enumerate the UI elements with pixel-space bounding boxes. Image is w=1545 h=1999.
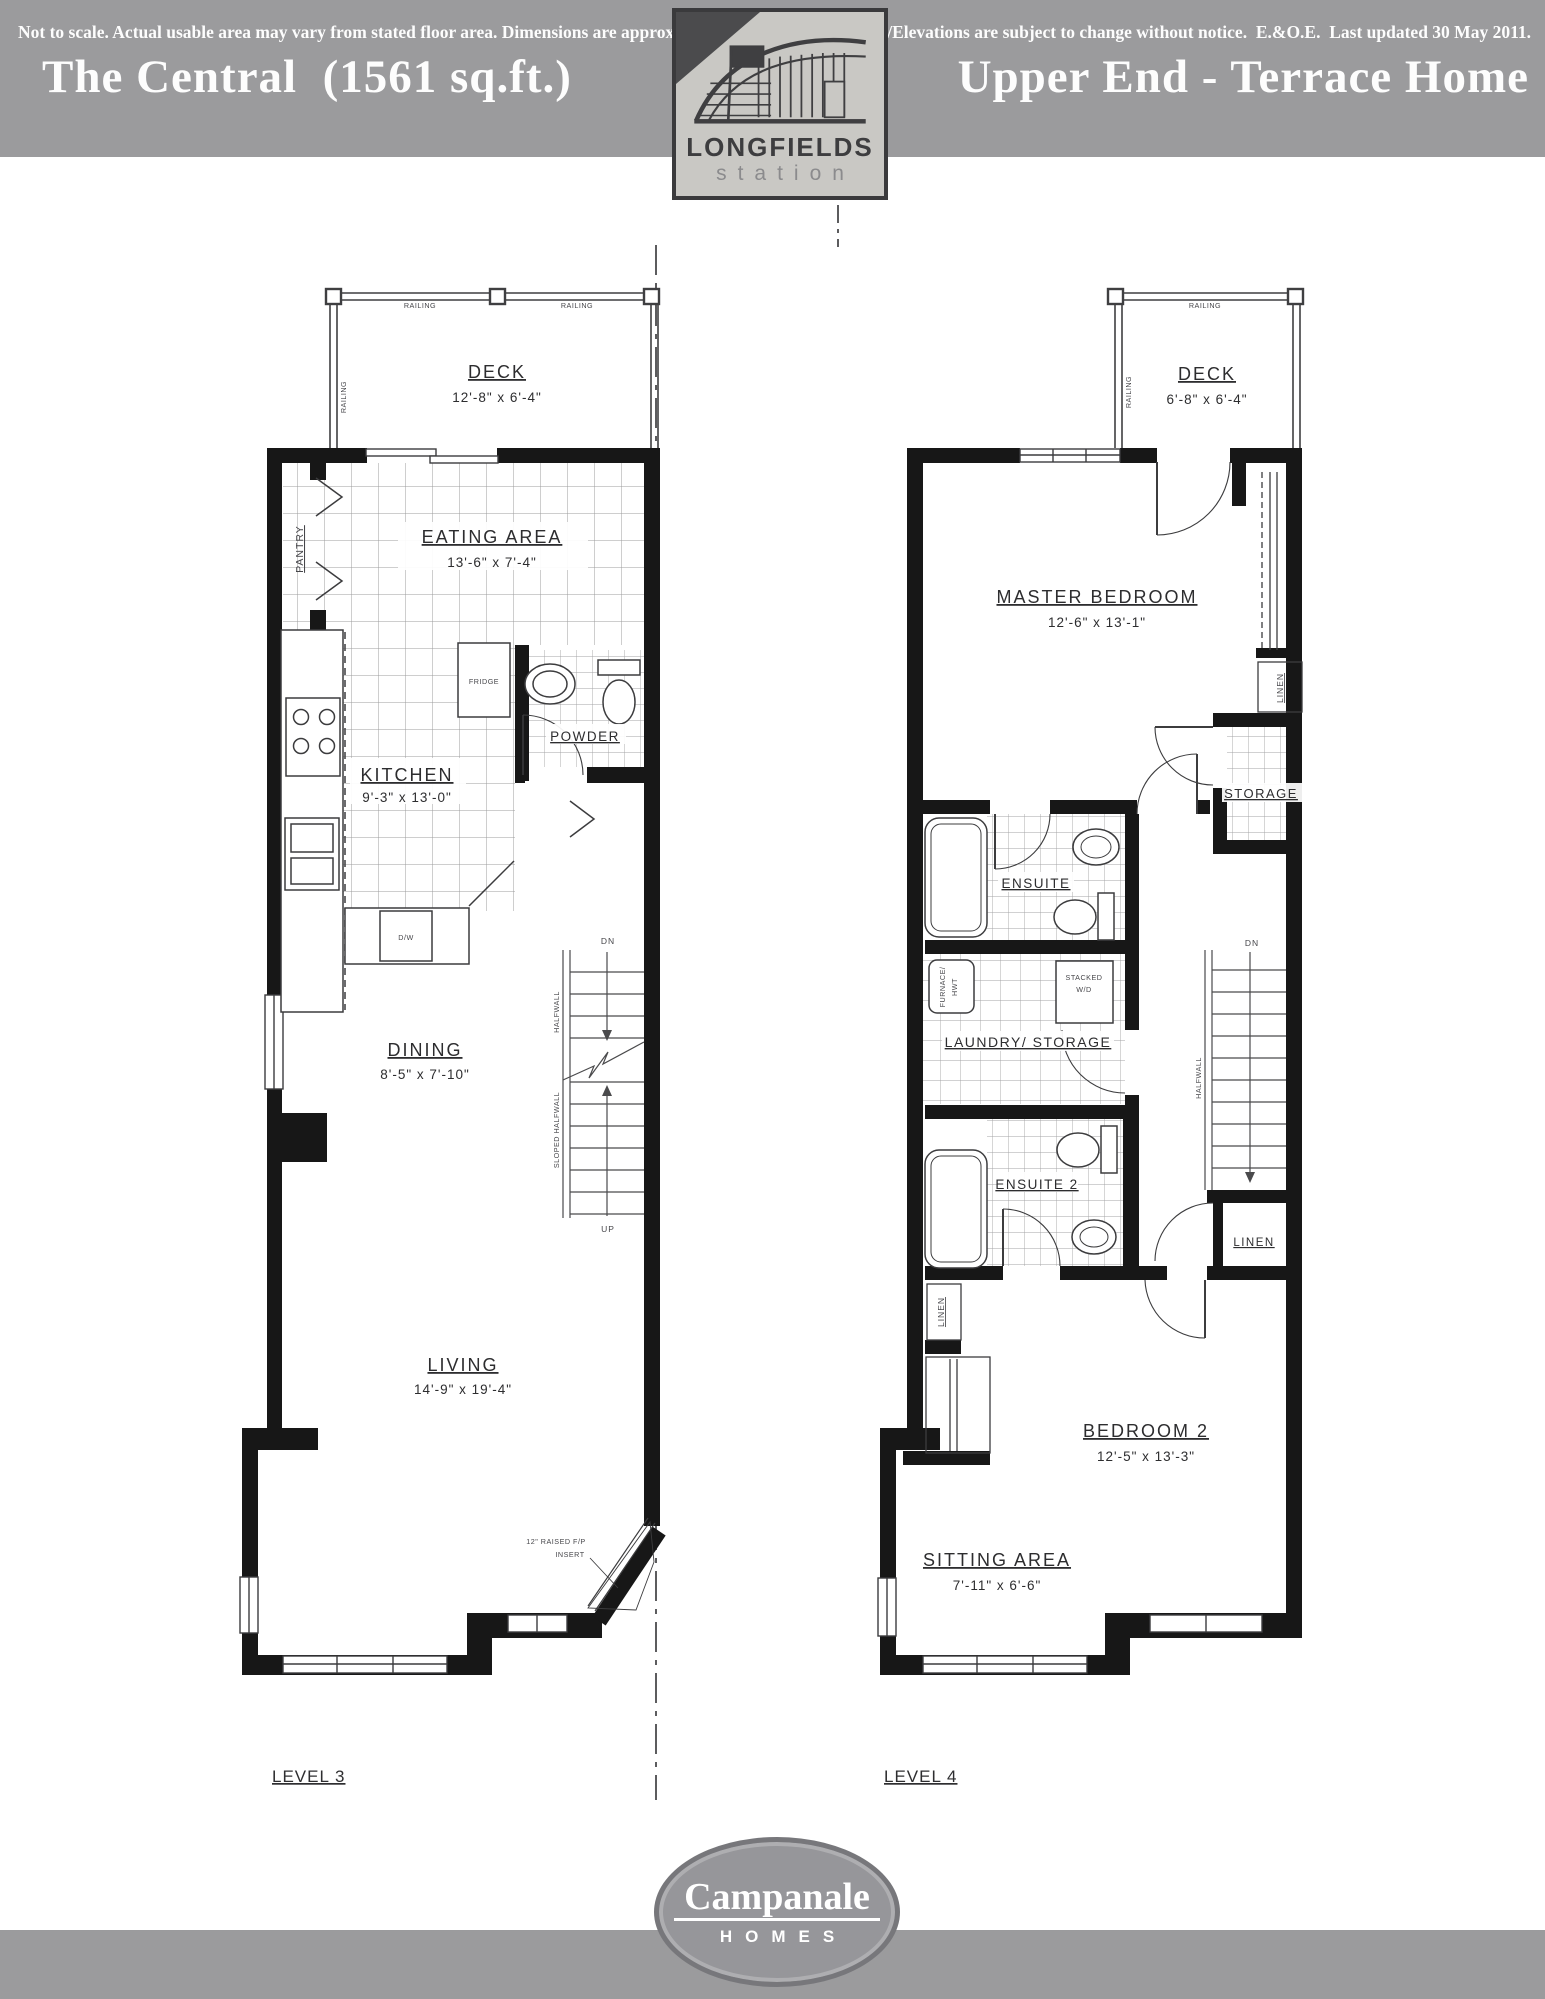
ensuite-sink bbox=[1073, 829, 1119, 865]
powder-label: POWDER bbox=[550, 729, 620, 744]
ensuite2-tub bbox=[925, 1150, 987, 1268]
ensuite2-label: ENSUITE 2 bbox=[995, 1177, 1078, 1192]
stove bbox=[286, 698, 340, 776]
railing-label: RAILING bbox=[1189, 301, 1221, 310]
hall-closet-door bbox=[570, 801, 594, 837]
railing-label: RAILING bbox=[404, 301, 436, 310]
eating-area-dims: 13'-6" x 7'-4" bbox=[447, 555, 537, 570]
sitting-area-dims: 7'-11" x 6'-6" bbox=[953, 1578, 1042, 1593]
sitting-area-label: SITTING AREA bbox=[923, 1550, 1071, 1570]
ensuite-label: ENSUITE bbox=[1001, 876, 1070, 891]
bedroom2-label: BEDROOM 2 bbox=[1083, 1421, 1209, 1441]
dishwasher-label: D/W bbox=[398, 933, 413, 942]
level3-plan: RAILING RAILING RAILING DECK 12'-8" x 6'… bbox=[240, 289, 660, 1786]
furnace-hwt-label: HWT bbox=[950, 978, 959, 996]
footer-disclaimer-left: Not to scale. Actual usable area may var… bbox=[18, 22, 720, 43]
fridge-label: FRIDGE bbox=[469, 677, 499, 686]
stairs-dn-label: DN bbox=[1245, 938, 1259, 948]
railing-label: RAILING bbox=[339, 381, 348, 413]
living-label: LIVING bbox=[427, 1355, 498, 1375]
master-bedroom-label: MASTER BEDROOM bbox=[996, 587, 1197, 607]
laundry-storage-label: LAUNDRY/ STORAGE bbox=[945, 1034, 1112, 1050]
furnace-hwt-label: FURNACE/ bbox=[938, 967, 947, 1008]
storage-label: STORAGE bbox=[1224, 786, 1298, 801]
brand-wordmark-sub: HOMES bbox=[707, 1927, 847, 1947]
fireplace-label: 12" RAISED F/P bbox=[526, 1537, 585, 1546]
ensuite2-sink bbox=[1072, 1220, 1116, 1254]
kitchen-label: KITCHEN bbox=[360, 765, 453, 785]
deck-label: DECK bbox=[468, 362, 526, 382]
railing-label: RAILING bbox=[561, 301, 593, 310]
level4-title: LEVEL 4 bbox=[884, 1767, 957, 1786]
longfields-station-logo: LONGFIELDS station bbox=[672, 8, 888, 200]
level4-plan: RAILING RAILING DECK 6'-8" x 6'-4" MASTE… bbox=[878, 289, 1304, 1786]
floorplan-page: RAILING RAILING RAILING DECK 12'-8" x 6'… bbox=[0, 0, 1545, 1999]
station-building-icon bbox=[688, 28, 872, 128]
stacked-wd-label: W/D bbox=[1076, 985, 1091, 994]
linen-label: LINEN bbox=[936, 1297, 946, 1327]
living-dims: 14'-9" x 19'-4" bbox=[414, 1382, 512, 1397]
fireplace-label: INSERT bbox=[555, 1550, 584, 1559]
kitchen-sink bbox=[285, 818, 339, 890]
halfwall-label: HALFWALL bbox=[1194, 1057, 1203, 1099]
logo-wordmark-sub: station bbox=[676, 162, 884, 186]
ensuite2-toilet bbox=[1101, 1126, 1117, 1173]
stairs-up-label: UP bbox=[601, 1224, 615, 1234]
stairs-dn-label: DN bbox=[601, 936, 615, 946]
unit-divider-lines bbox=[656, 205, 838, 1800]
sloped-halfwall-label: SLOPED HALFWALL bbox=[552, 1092, 561, 1168]
floorplan-drawing: RAILING RAILING RAILING DECK 12'-8" x 6'… bbox=[0, 0, 1545, 1999]
brand-wordmark: Campanale bbox=[674, 1878, 880, 1921]
dining-dims: 8'-5" x 7'-10" bbox=[380, 1067, 470, 1082]
level3-stairs bbox=[563, 950, 644, 1218]
linen-label: LINEN bbox=[1275, 673, 1285, 703]
bedroom2-dims: 12'-5" x 13'-3" bbox=[1097, 1449, 1195, 1464]
powder-toilet bbox=[598, 660, 640, 675]
linen-label: LINEN bbox=[1233, 1237, 1274, 1249]
level3-title: LEVEL 3 bbox=[272, 1767, 345, 1786]
level4-labels: RAILING RAILING DECK 6'-8" x 6'-4" MASTE… bbox=[884, 301, 1298, 1786]
kitchen-dims: 9'-3" x 13'-0" bbox=[362, 790, 452, 805]
deck-dims: 6'-8" x 6'-4" bbox=[1166, 392, 1247, 407]
dining-label: DINING bbox=[388, 1040, 463, 1060]
ensuite-toilet bbox=[1098, 893, 1114, 940]
ensuite-tub bbox=[925, 818, 987, 937]
eating-area-label: EATING AREA bbox=[422, 527, 563, 547]
pantry-label: PANTRY bbox=[294, 525, 306, 573]
railing-label: RAILING bbox=[1124, 376, 1133, 408]
footer-disclaimer-right: Plans/Elevations are subject to change w… bbox=[846, 22, 1531, 43]
deck-dims: 12'-8" x 6'-4" bbox=[452, 390, 542, 405]
plan-subtitle: Upper End - Terrace Home bbox=[958, 50, 1529, 104]
campanale-homes-logo: Campanale HOMES bbox=[654, 1837, 900, 1987]
level4-stairs bbox=[1205, 950, 1286, 1190]
halfwall-label: HALFWALL bbox=[552, 991, 561, 1033]
deck-label: DECK bbox=[1178, 364, 1236, 384]
logo-wordmark: LONGFIELDS bbox=[676, 132, 884, 163]
master-bedroom-dims: 12'-6" x 13'-1" bbox=[1048, 615, 1146, 630]
stacked-wd-label: STACKED bbox=[1066, 973, 1103, 982]
plan-title: The Central (1561 sq.ft.) bbox=[42, 50, 572, 104]
